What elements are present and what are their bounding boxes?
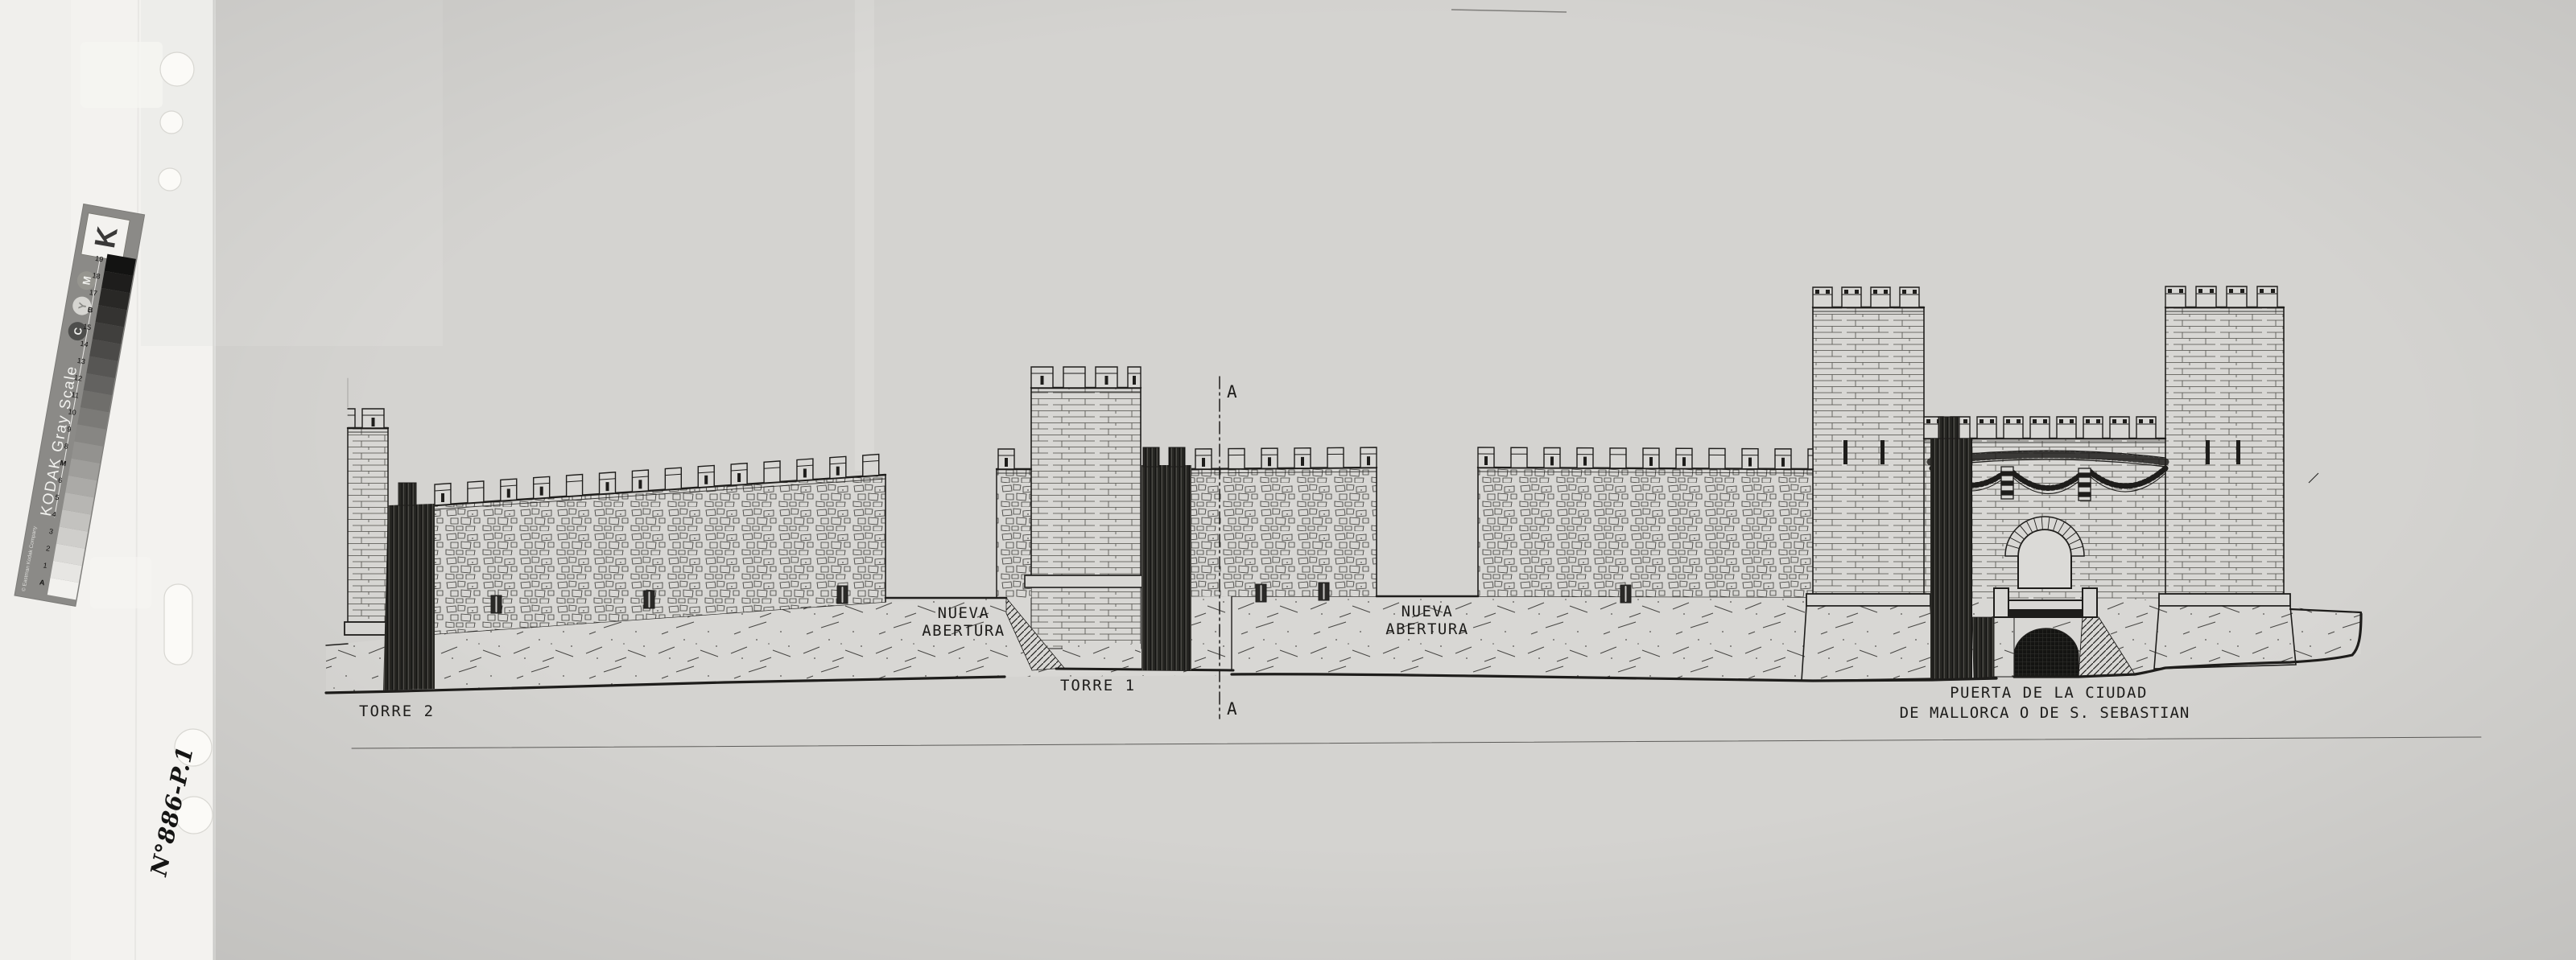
torre-1-plinth [1025,575,1147,587]
torre2-shadow-band [383,504,435,690]
parapet-block [1994,588,2008,617]
label-gate-line1: PUERTA DE LA CIUDAD [1950,684,2148,702]
section-marker-bottom: A [1227,699,1237,719]
gray-step-label: 11 [71,390,80,399]
merlon [1063,367,1085,388]
torre1-shadow-band [1141,465,1191,670]
section-marker-top: A [1227,382,1237,402]
merlon [468,481,484,503]
label-torre-1: TORRE 1 [1060,677,1136,694]
merlon [1511,447,1527,468]
gate-right-tower [2154,307,2296,669]
sleeve-tab [80,42,163,108]
wall-middle [1191,468,1377,596]
parapet-block [2083,588,2097,617]
sleeve-tab [90,557,151,608]
arrow-slit [2206,440,2210,464]
gray-step-label: 19 [94,254,104,264]
label-nueva-abertura-2-line1: NUEVA [1402,603,1454,620]
label-torre-2: TORRE 2 [359,702,435,720]
merlon [764,461,780,483]
punch-hole [159,168,181,191]
torre1-excavation-trench [1006,587,1233,670]
label-nueva-abertura-1-line1: NUEVA [938,604,990,622]
scanned-photograph: © Eastman Kodak Company KODAK Gray Scale… [0,0,2576,960]
merlon [1610,448,1626,468]
torre-2-plinth [345,622,391,635]
gray-step-label: 15 [83,323,93,332]
merlon [1709,448,1725,468]
gray-step-label: 10 [68,407,77,417]
kodak-logo-icon: K [81,213,130,262]
label-gate-line2: DE MALLORCA O DE S. SEBASTIAN [1900,704,2190,722]
gate-left-tower [1802,307,1935,681]
punch-hole [160,111,183,134]
gray-step-label: 12 [73,373,83,383]
gray-step-label: 14 [80,340,89,349]
label-nueva-abertura-2-line2: ABERTURA [1385,620,1469,638]
merlon [1808,449,1813,469]
gray-step-label: 17 [89,288,98,298]
merlon [665,468,681,489]
merlon [863,455,879,476]
culvert-arch [2014,628,2079,677]
punch-slot [164,584,192,665]
gray-step-label: 13 [76,356,86,366]
label-nueva-abertura-1-line2: ABERTURA [922,622,1005,640]
wall-east [1478,468,1813,597]
arrow-slit [1880,440,1885,464]
gate-shadow-band [1930,439,1972,680]
gray-step-label: 18 [92,271,101,281]
arrow-slit [1843,440,1847,464]
merlon [567,475,583,496]
arrow-slit [2236,440,2240,464]
scan-streak [855,0,874,471]
punch-hole [160,52,194,86]
merlon [1228,448,1245,468]
merlon [1327,447,1344,468]
